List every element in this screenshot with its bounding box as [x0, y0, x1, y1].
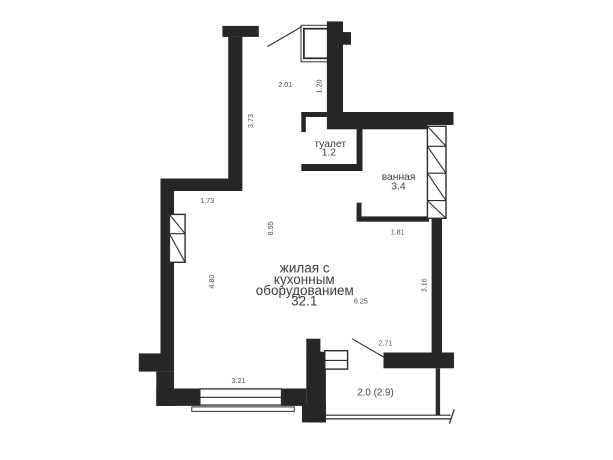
svg-text:1.20: 1.20 — [315, 80, 324, 94]
svg-text:2.01: 2.01 — [278, 80, 292, 89]
svg-text:2.71: 2.71 — [378, 339, 392, 348]
svg-text:4.80: 4.80 — [207, 275, 216, 289]
svg-text:1.81: 1.81 — [391, 227, 405, 236]
svg-text:32.1: 32.1 — [291, 294, 317, 309]
svg-text:8.55: 8.55 — [266, 221, 275, 235]
svg-text:3.21: 3.21 — [232, 376, 246, 385]
svg-text:3.4: 3.4 — [391, 182, 406, 193]
svg-text:2.0 (2.9): 2.0 (2.9) — [357, 387, 394, 398]
svg-text:1.2: 1.2 — [322, 147, 337, 158]
svg-text:1.73: 1.73 — [200, 196, 214, 205]
svg-text:6.25: 6.25 — [354, 297, 368, 306]
svg-text:3.16: 3.16 — [420, 278, 429, 292]
svg-text:3.73: 3.73 — [246, 114, 255, 128]
